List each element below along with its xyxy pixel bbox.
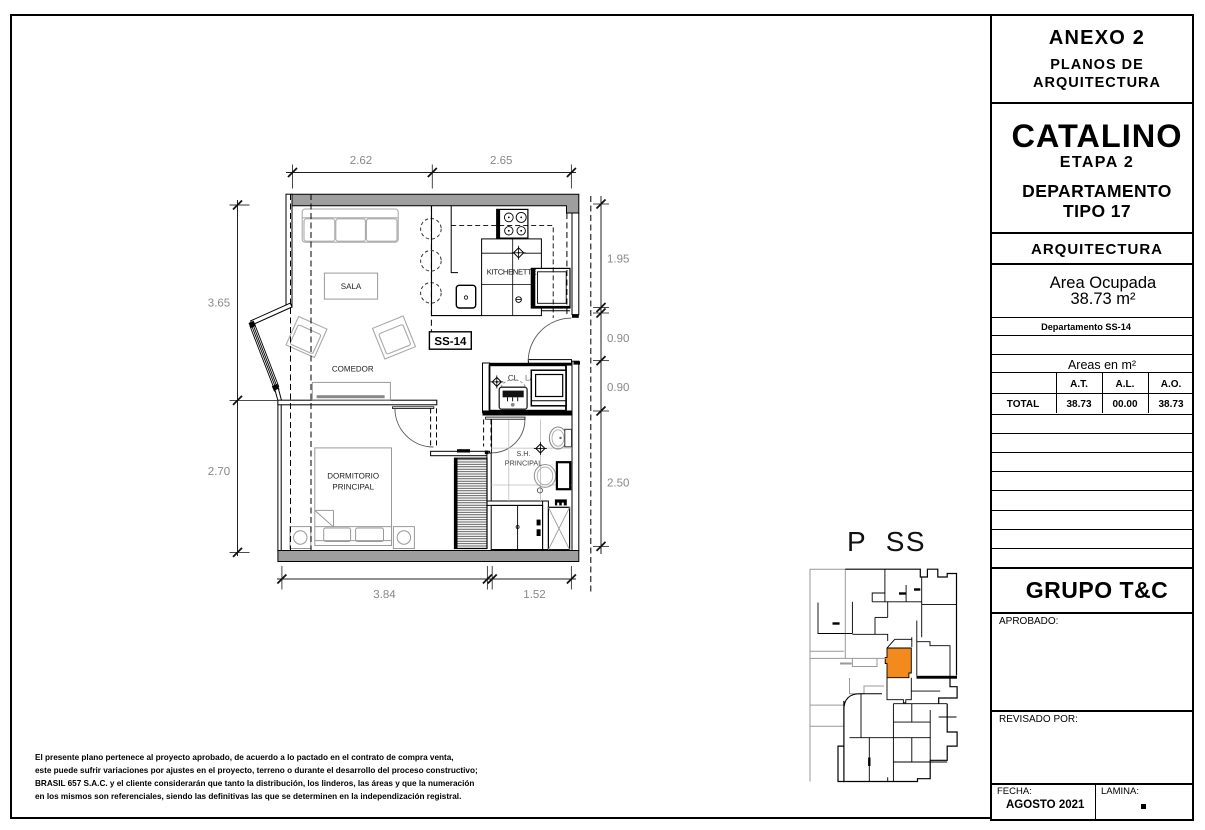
svg-text:SS-14: SS-14 — [434, 336, 467, 348]
svg-text:KITCHENETTE: KITCHENETTE — [487, 268, 537, 277]
svg-text:2.65: 2.65 — [490, 155, 512, 167]
svg-text:COMEDOR: COMEDOR — [332, 364, 374, 373]
svg-text:0.90: 0.90 — [607, 382, 629, 394]
svg-text:SALA: SALA — [341, 282, 362, 291]
svg-text:1.95: 1.95 — [607, 254, 629, 266]
svg-text:2.62: 2.62 — [350, 155, 372, 167]
svg-text:PRINCIPAL: PRINCIPAL — [332, 482, 374, 491]
svg-text:2.50: 2.50 — [607, 478, 629, 490]
svg-text:CL: CL — [508, 374, 519, 383]
svg-text:3.65: 3.65 — [208, 298, 230, 310]
svg-text:0.90: 0.90 — [607, 333, 629, 345]
svg-text:S.H.: S.H. — [517, 449, 531, 458]
svg-text:PRINCIPAL: PRINCIPAL — [505, 458, 542, 467]
svg-text:1.52: 1.52 — [523, 589, 545, 601]
svg-text:2.70: 2.70 — [208, 466, 230, 478]
svg-text:3.84: 3.84 — [373, 589, 396, 601]
svg-text:DORMITORIO: DORMITORIO — [327, 471, 379, 480]
